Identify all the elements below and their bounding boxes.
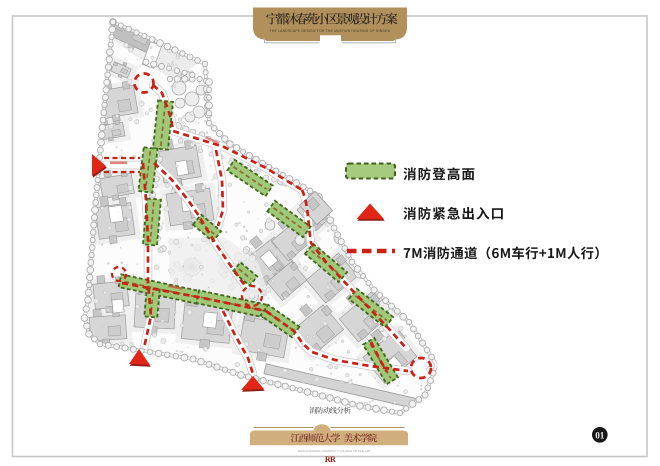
svg-text:THE LANDSCAPE DESIGN FOR THE M: THE LANDSCAPE DESIGN FOR THE MUCHUN HOUS…	[270, 29, 391, 33]
svg-text:RR: RR	[325, 455, 336, 464]
svg-text:JIANGXI NORMAL UNIVERSITY COLL: JIANGXI NORMAL UNIVERSITY COLLEGE OF FIN…	[298, 449, 371, 453]
svg-text:01: 01	[595, 430, 605, 440]
